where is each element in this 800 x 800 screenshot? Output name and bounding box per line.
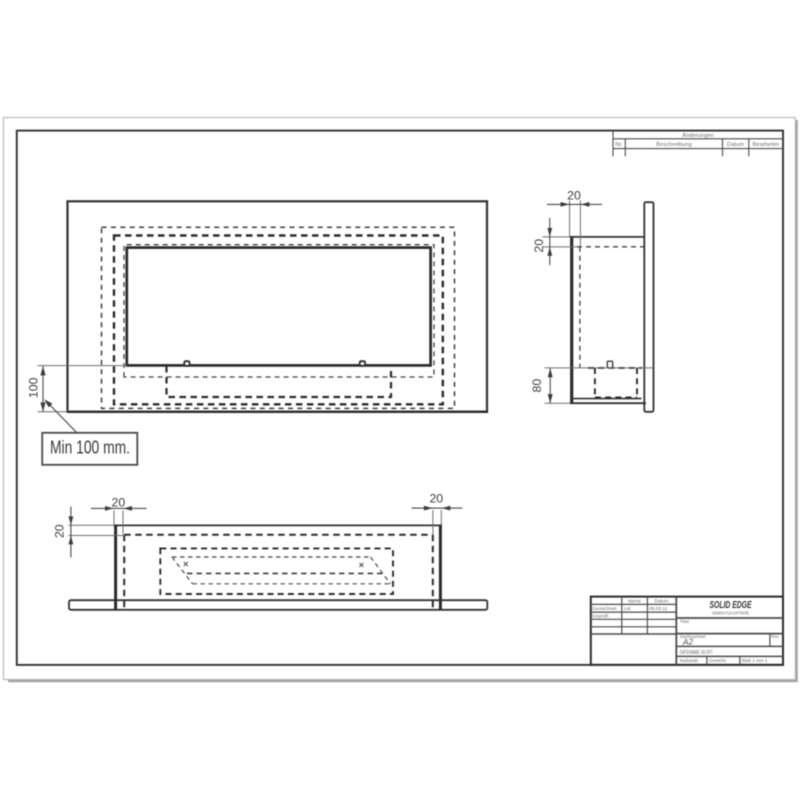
svg-text:SIEMENS PLM SOFTWARE: SIEMENS PLM SOFTWARE <box>712 611 749 616</box>
svg-text:Bearbeiter: Bearbeiter <box>753 142 780 148</box>
svg-text:Geprüft: Geprüft <box>592 614 609 620</box>
svg-text:Rev: Rev <box>771 634 779 639</box>
svg-text:Maßstab:: Maßstab: <box>680 658 699 663</box>
svg-text:20: 20 <box>567 189 581 203</box>
svg-text:09.03.11: 09.03.11 <box>649 606 668 612</box>
svg-text:20: 20 <box>52 524 66 538</box>
svg-text:80: 80 <box>530 379 544 393</box>
svg-text:Nr.: Nr. <box>615 142 623 148</box>
svg-text:Lst: Lst <box>624 606 631 612</box>
svg-text:Gewicht:: Gewicht: <box>709 658 727 663</box>
svg-text:Änderungen: Änderungen <box>682 132 714 139</box>
svg-text:SOLID EDGE: SOLID EDGE <box>710 599 753 611</box>
svg-text:20: 20 <box>429 492 443 506</box>
svg-text:Datum: Datum <box>727 142 744 148</box>
svg-text:DATEINAME: 60.DFT: DATEINAME: 60.DFT <box>680 650 713 656</box>
svg-text:Gezeichnet: Gezeichnet <box>592 606 617 612</box>
svg-text:Beschreibung: Beschreibung <box>656 142 691 148</box>
svg-text:Datum: Datum <box>654 599 668 605</box>
svg-text:Titel: Titel <box>680 619 689 625</box>
svg-text:A2: A2 <box>681 636 693 647</box>
svg-text:100: 100 <box>27 377 41 398</box>
svg-text:Name: Name <box>628 599 641 605</box>
svg-text:20: 20 <box>112 496 126 510</box>
svg-text:Min 100 mm.: Min 100 mm. <box>50 437 130 458</box>
svg-text:Blatt 1 von 1: Blatt 1 von 1 <box>742 658 768 663</box>
svg-text:20: 20 <box>532 239 546 253</box>
